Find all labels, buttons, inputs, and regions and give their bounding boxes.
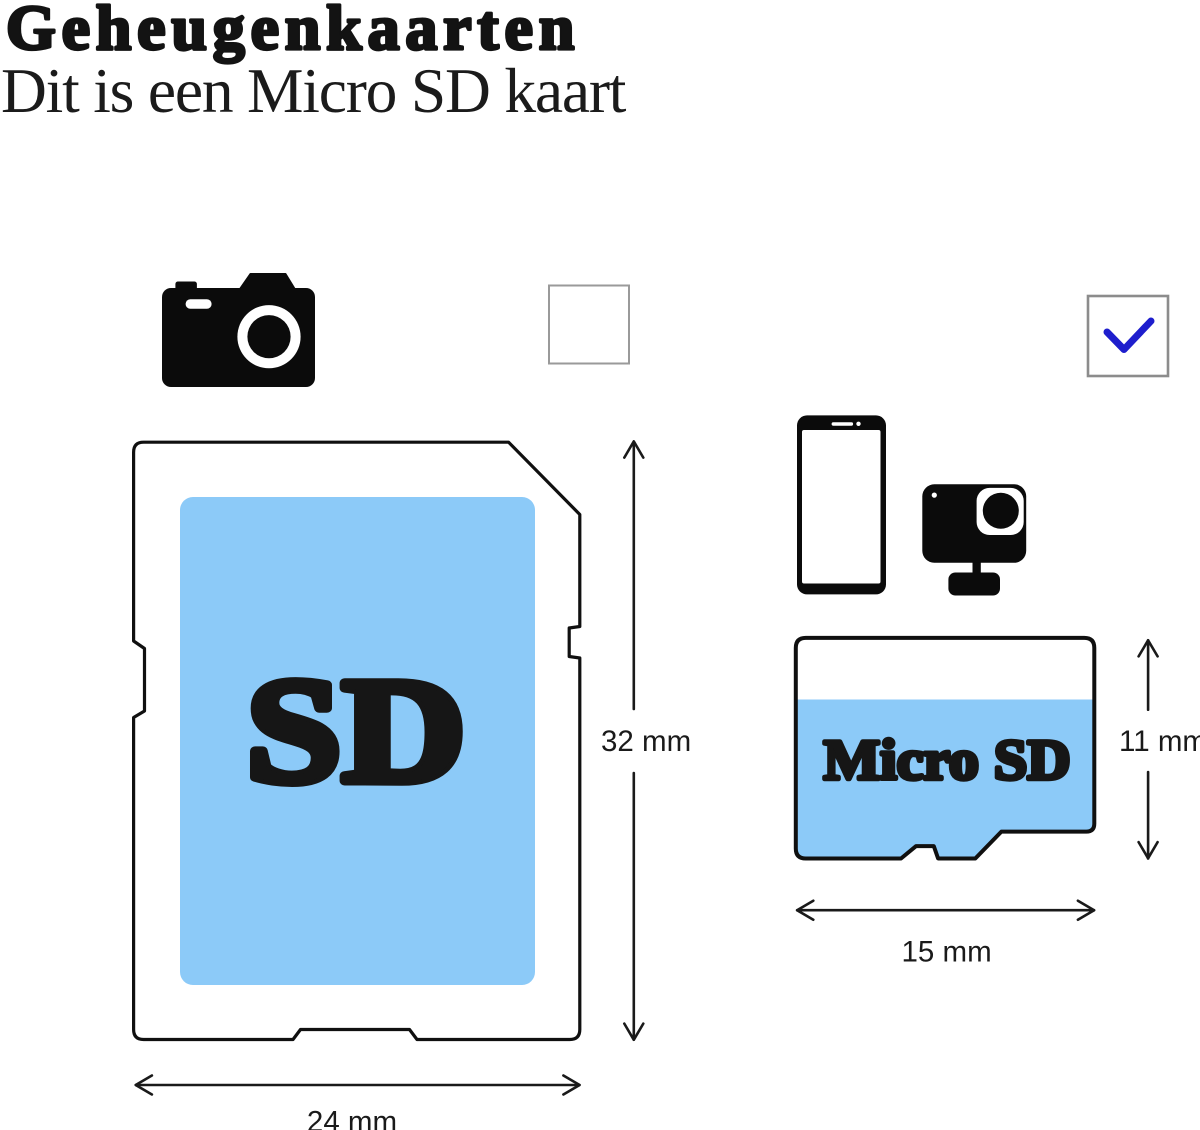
svg-text:15 mm: 15 mm [902,935,992,968]
svg-text:Geheugenkaarten: Geheugenkaarten [6,0,580,63]
svg-text:32 mm: 32 mm [601,725,691,758]
svg-text:11 mm: 11 mm [1119,725,1200,758]
svg-text:Dit is een Micro SD kaart: Dit is een Micro SD kaart [1,55,627,126]
svg-text:Micro SD: Micro SD [824,729,1071,792]
svg-text:24 mm: 24 mm [307,1106,397,1130]
svg-text:SD: SD [246,648,466,814]
